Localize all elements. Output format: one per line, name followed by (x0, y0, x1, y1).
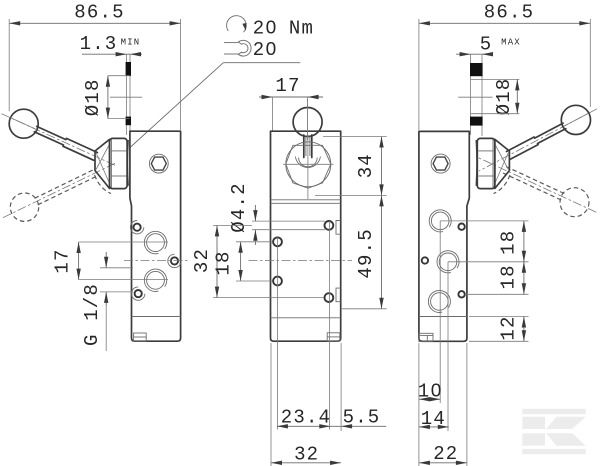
svg-text:12: 12 (497, 315, 519, 340)
svg-text:1.3: 1.3 (80, 33, 118, 55)
svg-text:49.5: 49.5 (355, 228, 377, 278)
svg-text:5: 5 (480, 34, 493, 56)
svg-text:17: 17 (52, 248, 74, 273)
svg-text:32: 32 (191, 248, 213, 273)
svg-text:18: 18 (213, 250, 235, 275)
svg-text:86.5: 86.5 (484, 2, 534, 24)
svg-text:G 1/8: G 1/8 (81, 283, 103, 346)
svg-text:Ø18: Ø18 (493, 78, 515, 116)
svg-text:20: 20 (253, 17, 278, 39)
svg-text:Nm: Nm (289, 17, 314, 39)
svg-text:MAX: MAX (501, 38, 521, 48)
svg-text:Ø18: Ø18 (82, 78, 104, 116)
svg-text:MIN: MIN (121, 38, 141, 48)
svg-text:22: 22 (433, 443, 458, 465)
svg-text:20: 20 (253, 39, 278, 61)
svg-text:86.5: 86.5 (74, 2, 124, 24)
svg-text:18: 18 (497, 264, 519, 289)
svg-text:18: 18 (497, 230, 519, 255)
svg-text:17: 17 (275, 75, 300, 97)
svg-text:34: 34 (355, 153, 377, 178)
svg-text:32: 32 (294, 444, 319, 466)
